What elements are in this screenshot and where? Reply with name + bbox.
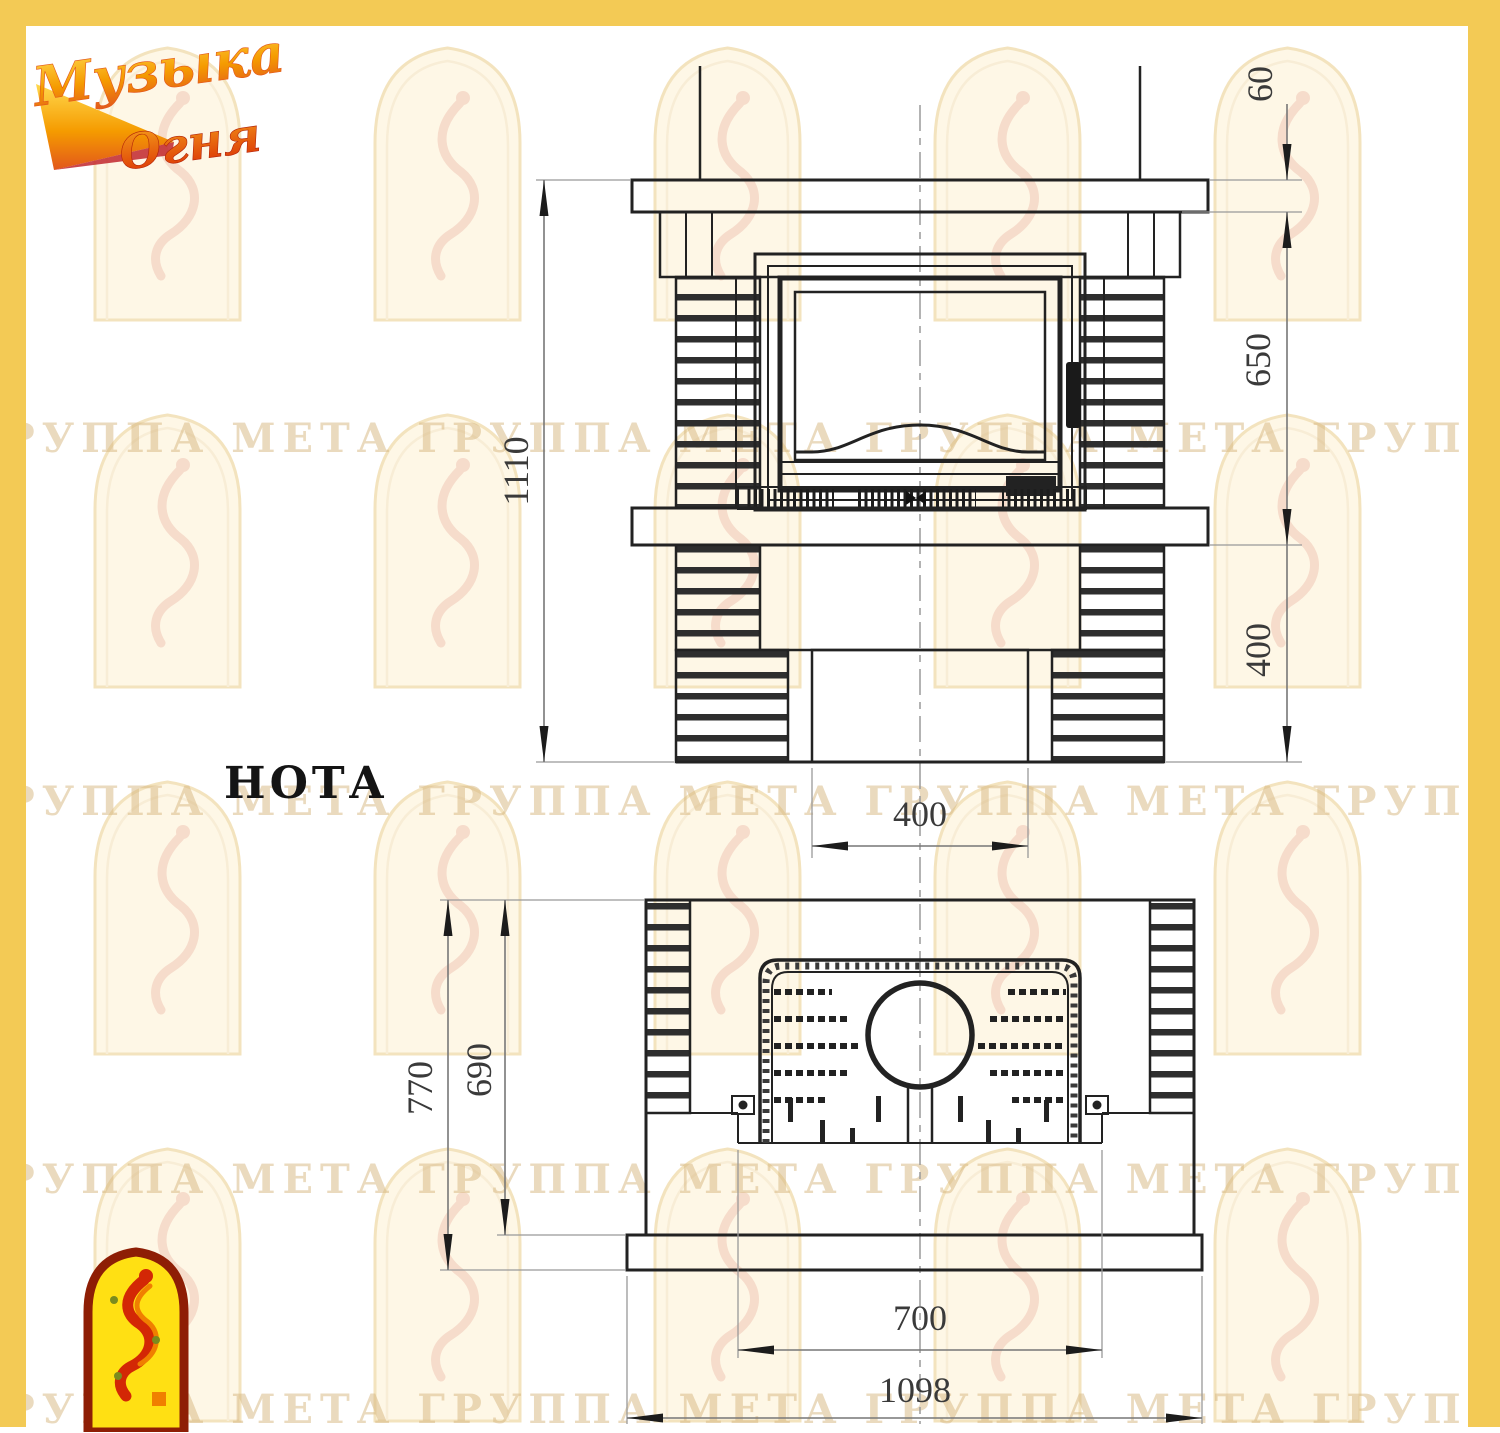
dim-total-width: 1098 bbox=[879, 1370, 951, 1410]
plan-base-slab bbox=[627, 1235, 1202, 1270]
dim-firebox-zone-height: 650 bbox=[1238, 333, 1278, 387]
pedestal-brick-right bbox=[1080, 545, 1164, 650]
plan-brick-right bbox=[1150, 900, 1194, 1113]
dim-pedestal-height: 400 bbox=[1238, 623, 1278, 677]
model-title: НОТА bbox=[224, 758, 388, 809]
fireplace-technical-drawing: 1110 60 650 400 400 770 690 700 1098 bbox=[0, 0, 1500, 1427]
emblem-accent-square bbox=[152, 1392, 166, 1406]
logo-text-line2: Огня bbox=[116, 107, 264, 182]
pedestal-brick-left bbox=[676, 545, 760, 650]
dimensions: 1110 60 650 400 400 770 690 700 1098 bbox=[400, 66, 1302, 1424]
base-brick-right bbox=[1052, 650, 1164, 762]
page-border-right bbox=[1468, 0, 1500, 1427]
dim-plinth-width: 400 bbox=[893, 794, 947, 834]
page-border-left bbox=[0, 0, 26, 1427]
brick-column-left bbox=[676, 277, 760, 508]
front-pegs bbox=[788, 1096, 1049, 1142]
dim-body-depth: 690 bbox=[459, 1043, 499, 1097]
plan-brick-left bbox=[646, 900, 690, 1113]
dim-opening-width: 700 bbox=[893, 1298, 947, 1338]
dim-total-depth: 770 bbox=[400, 1061, 440, 1115]
logo-text-line1: Музыка bbox=[27, 22, 288, 119]
firebird-emblem bbox=[80, 1242, 192, 1432]
brick-column-right bbox=[1080, 277, 1164, 508]
vent-strip bbox=[738, 487, 1086, 509]
emblem-arch bbox=[88, 1252, 184, 1432]
dim-total-height: 1110 bbox=[496, 436, 536, 505]
dim-mantel-thickness: 60 bbox=[1240, 66, 1280, 102]
base-brick-left bbox=[676, 650, 788, 762]
emblem-firebird-head bbox=[139, 1269, 153, 1283]
door-handle bbox=[1066, 362, 1081, 428]
plan-view bbox=[627, 900, 1202, 1270]
company-logo: Музыка Огня bbox=[14, 22, 324, 202]
